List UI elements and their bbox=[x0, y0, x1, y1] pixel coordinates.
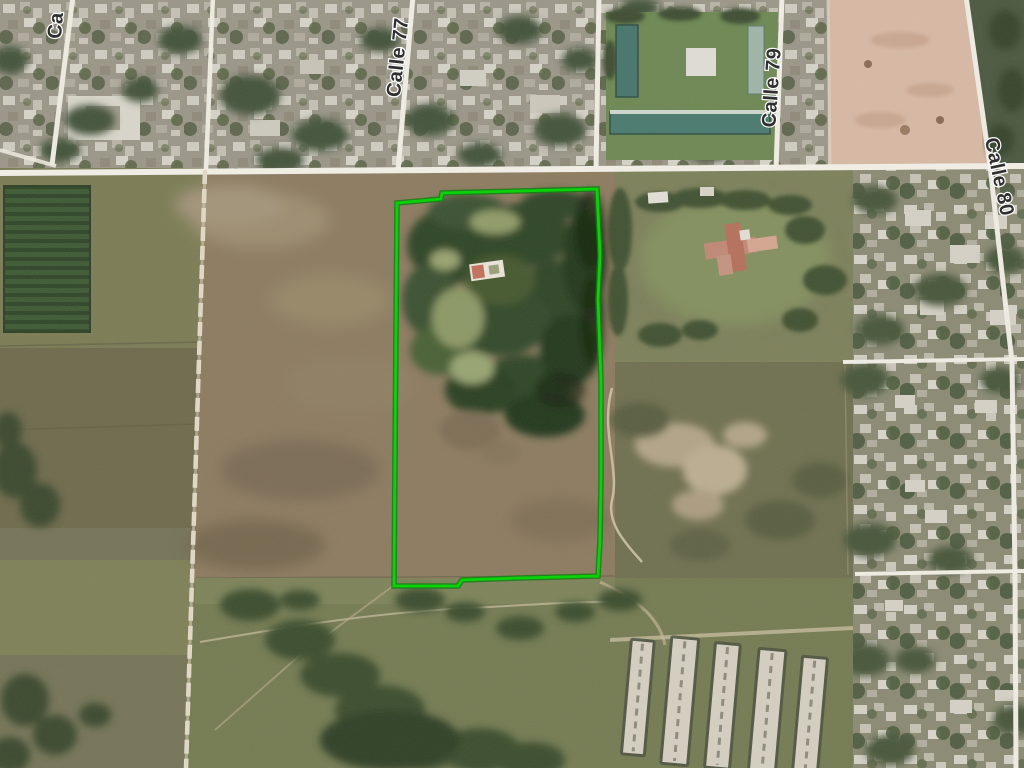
satellite-map-image: Ca Calle 77 Calle 79 Calle 80 bbox=[0, 0, 1024, 768]
satellite-map-canvas[interactable]: Ca Calle 77 Calle 79 Calle 80 bbox=[0, 0, 1024, 768]
street-label-partial: Ca bbox=[44, 11, 68, 40]
photo-grain-overlay bbox=[0, 0, 1024, 768]
